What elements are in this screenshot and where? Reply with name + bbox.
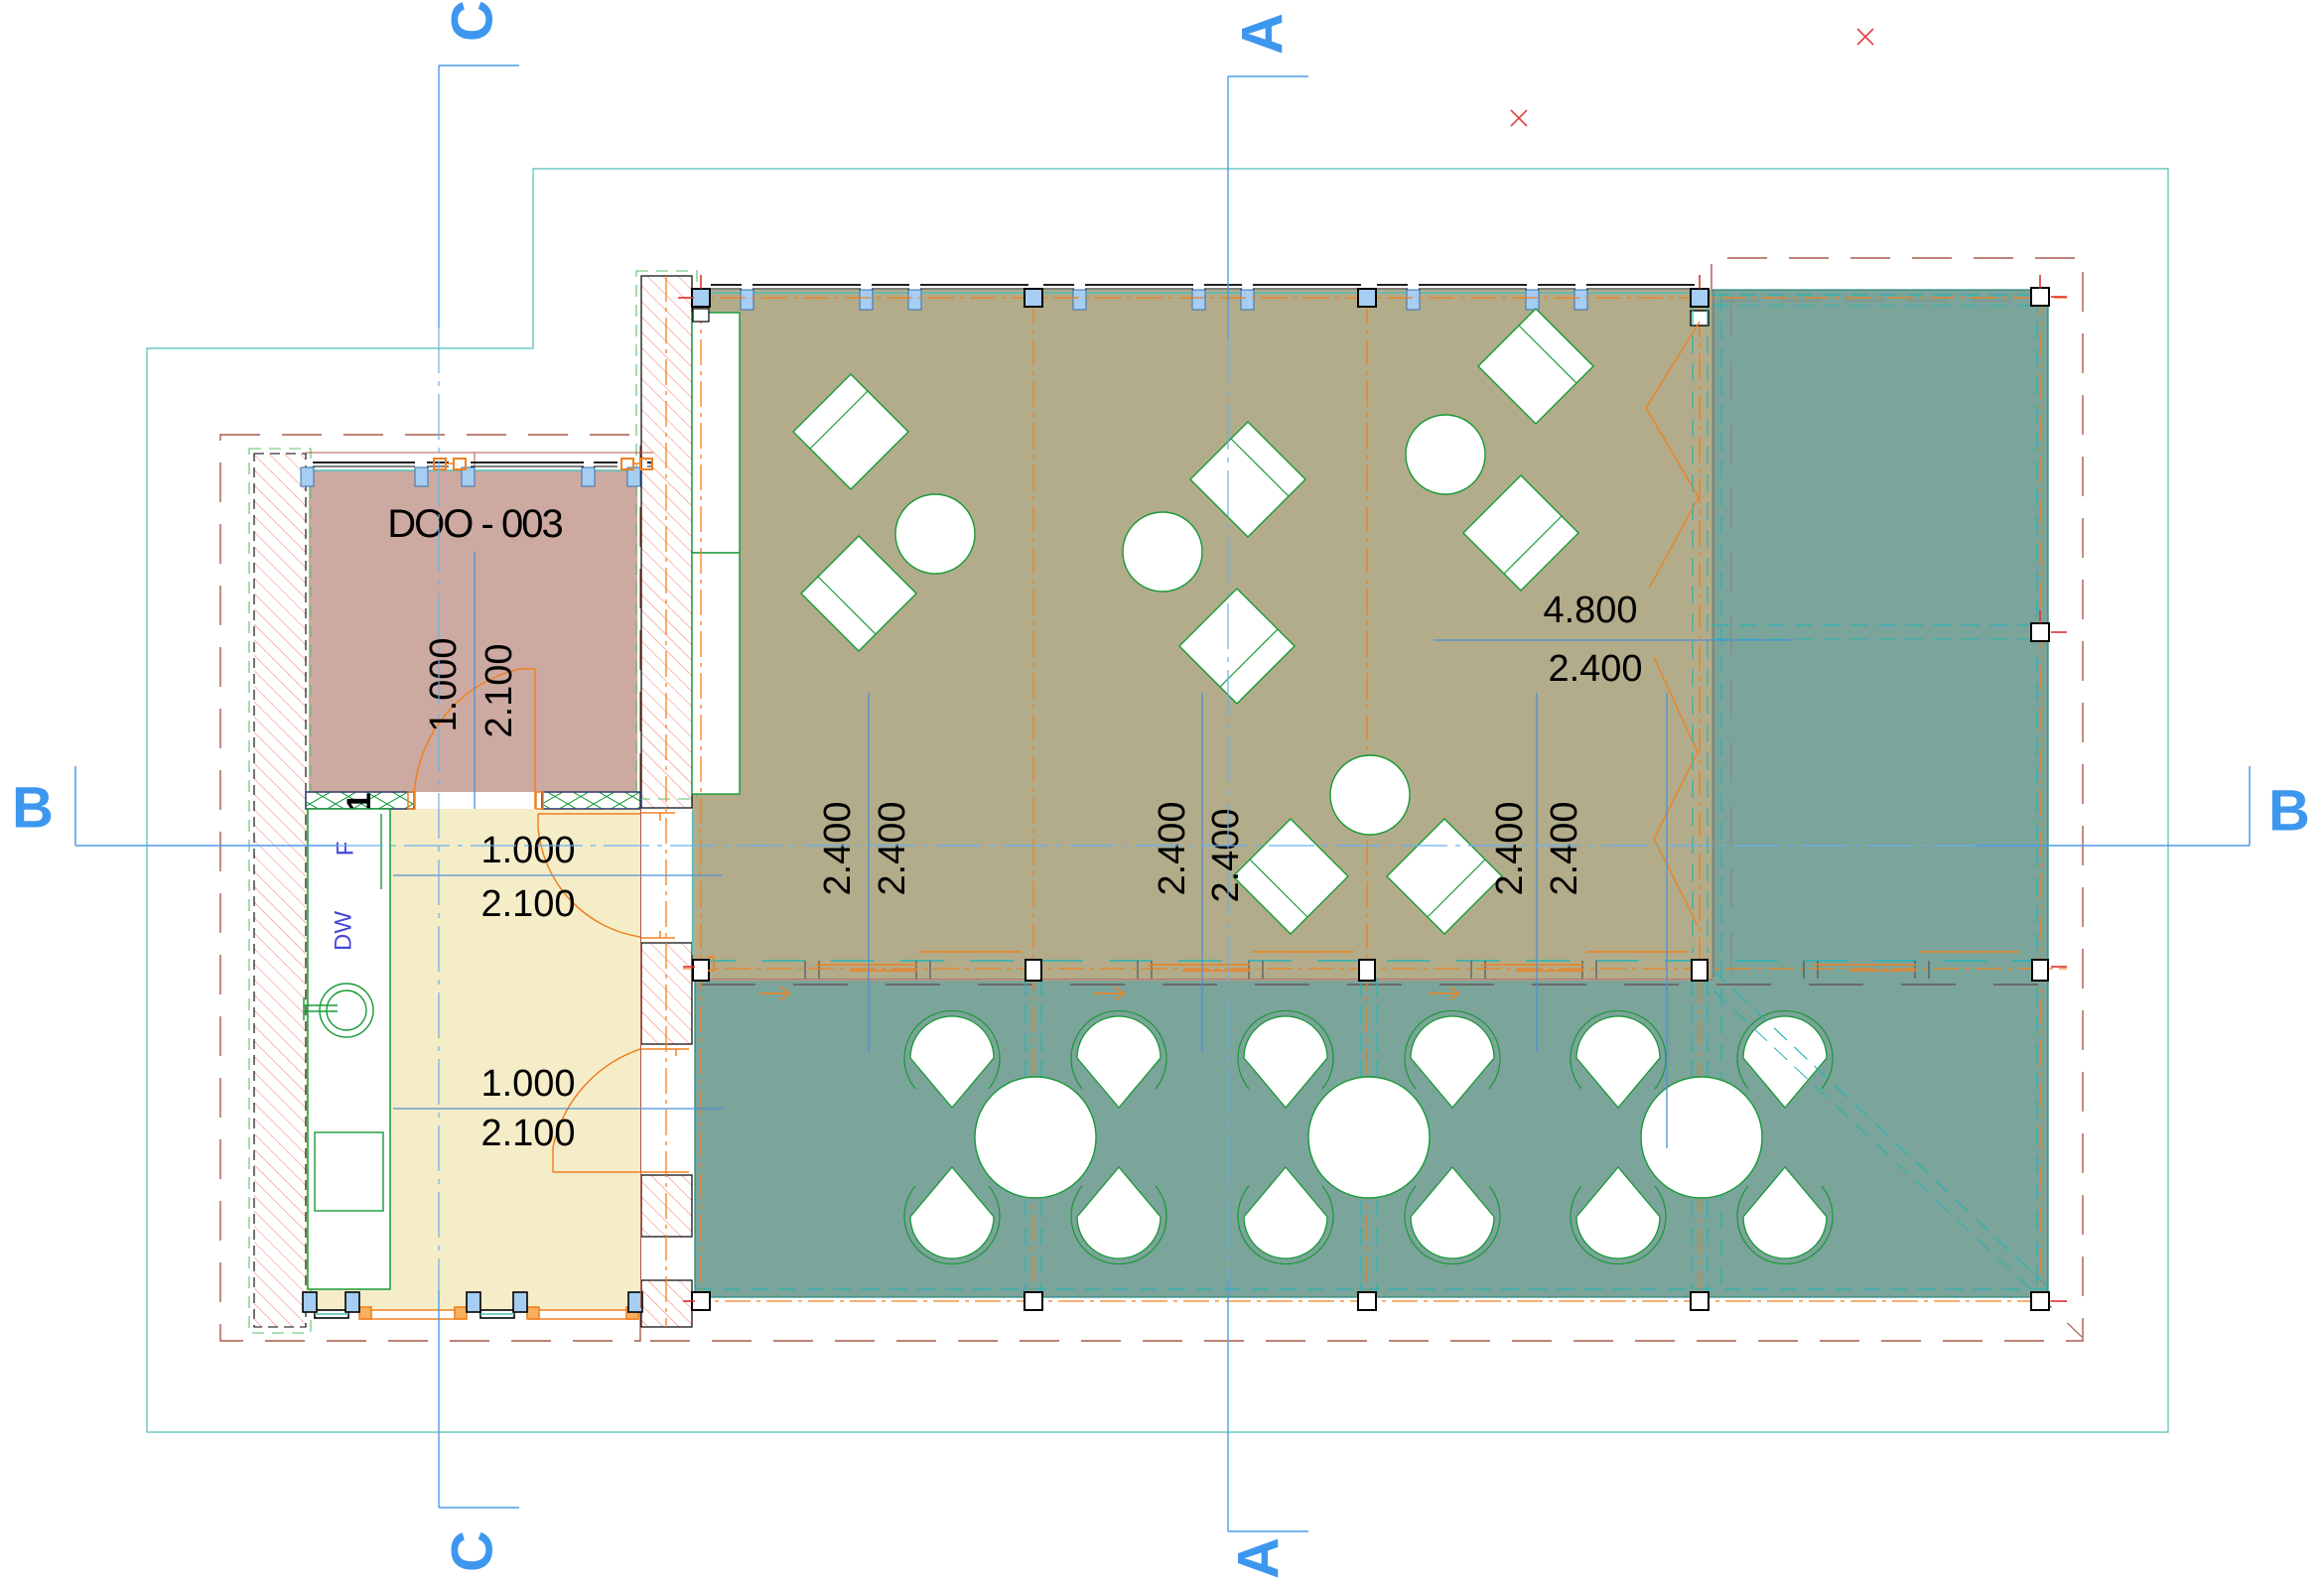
- svg-text:2.400: 2.400: [872, 801, 913, 895]
- svg-text:DW: DW: [331, 911, 357, 951]
- svg-text:B: B: [2268, 779, 2310, 844]
- svg-text:2.400: 2.400: [1152, 801, 1193, 895]
- svg-text:2.400: 2.400: [1205, 808, 1247, 902]
- svg-text:2.100: 2.100: [480, 1113, 575, 1154]
- svg-text:A: A: [1231, 13, 1296, 55]
- svg-text:1.000: 1.000: [480, 830, 575, 871]
- svg-text:1.000: 1.000: [423, 637, 465, 731]
- svg-text:C: C: [441, 0, 505, 42]
- svg-text:A: A: [1227, 1537, 1292, 1579]
- svg-text:F: F: [333, 842, 359, 857]
- svg-text:2.400: 2.400: [1489, 801, 1531, 895]
- svg-text:1.000: 1.000: [480, 1063, 575, 1105]
- svg-text:2.100: 2.100: [478, 643, 520, 737]
- svg-text:B: B: [12, 776, 54, 841]
- svg-text:2.400: 2.400: [1544, 801, 1585, 895]
- svg-text:DOO - 003: DOO - 003: [387, 502, 562, 546]
- svg-text:2.400: 2.400: [817, 801, 859, 895]
- svg-text:C: C: [441, 1530, 505, 1572]
- svg-text:4.800: 4.800: [1543, 590, 1637, 631]
- svg-text:2.400: 2.400: [1548, 648, 1642, 690]
- svg-text:2.100: 2.100: [480, 883, 575, 925]
